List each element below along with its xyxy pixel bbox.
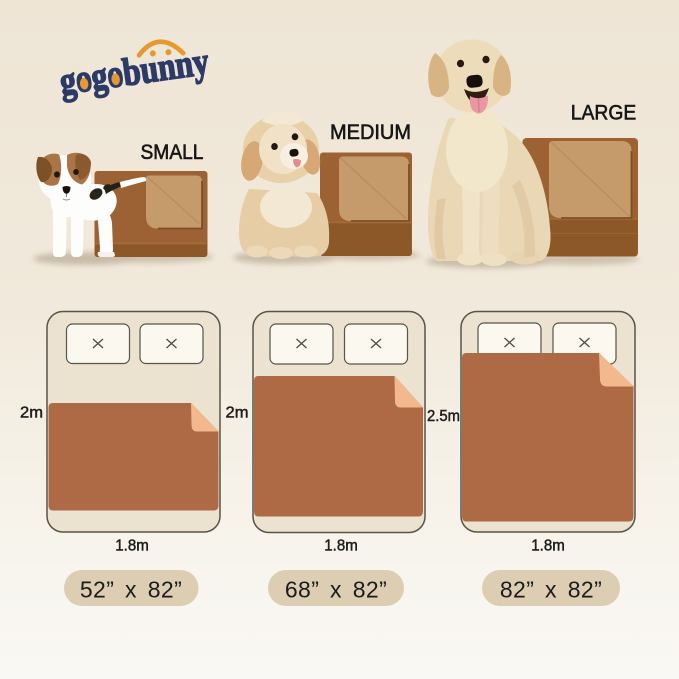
svg-text:1.8m: 1.8m (531, 538, 565, 555)
svg-text:2m: 2m (226, 405, 249, 422)
svg-text:2.5m: 2.5m (427, 408, 460, 425)
svg-text:1.8m: 1.8m (324, 538, 358, 555)
svg-text:82” x 82”: 82” x 82” (500, 577, 602, 603)
svg-text:2m: 2m (20, 405, 43, 422)
svg-text:52” x 82”: 52” x 82” (80, 577, 182, 603)
svg-text:1.8m: 1.8m (115, 538, 149, 555)
svg-text:MEDIUM: MEDIUM (330, 121, 411, 144)
svg-text:LARGE: LARGE (571, 102, 637, 125)
svg-text:68” x 82”: 68” x 82” (285, 577, 387, 603)
svg-text:SMALL: SMALL (141, 141, 204, 164)
